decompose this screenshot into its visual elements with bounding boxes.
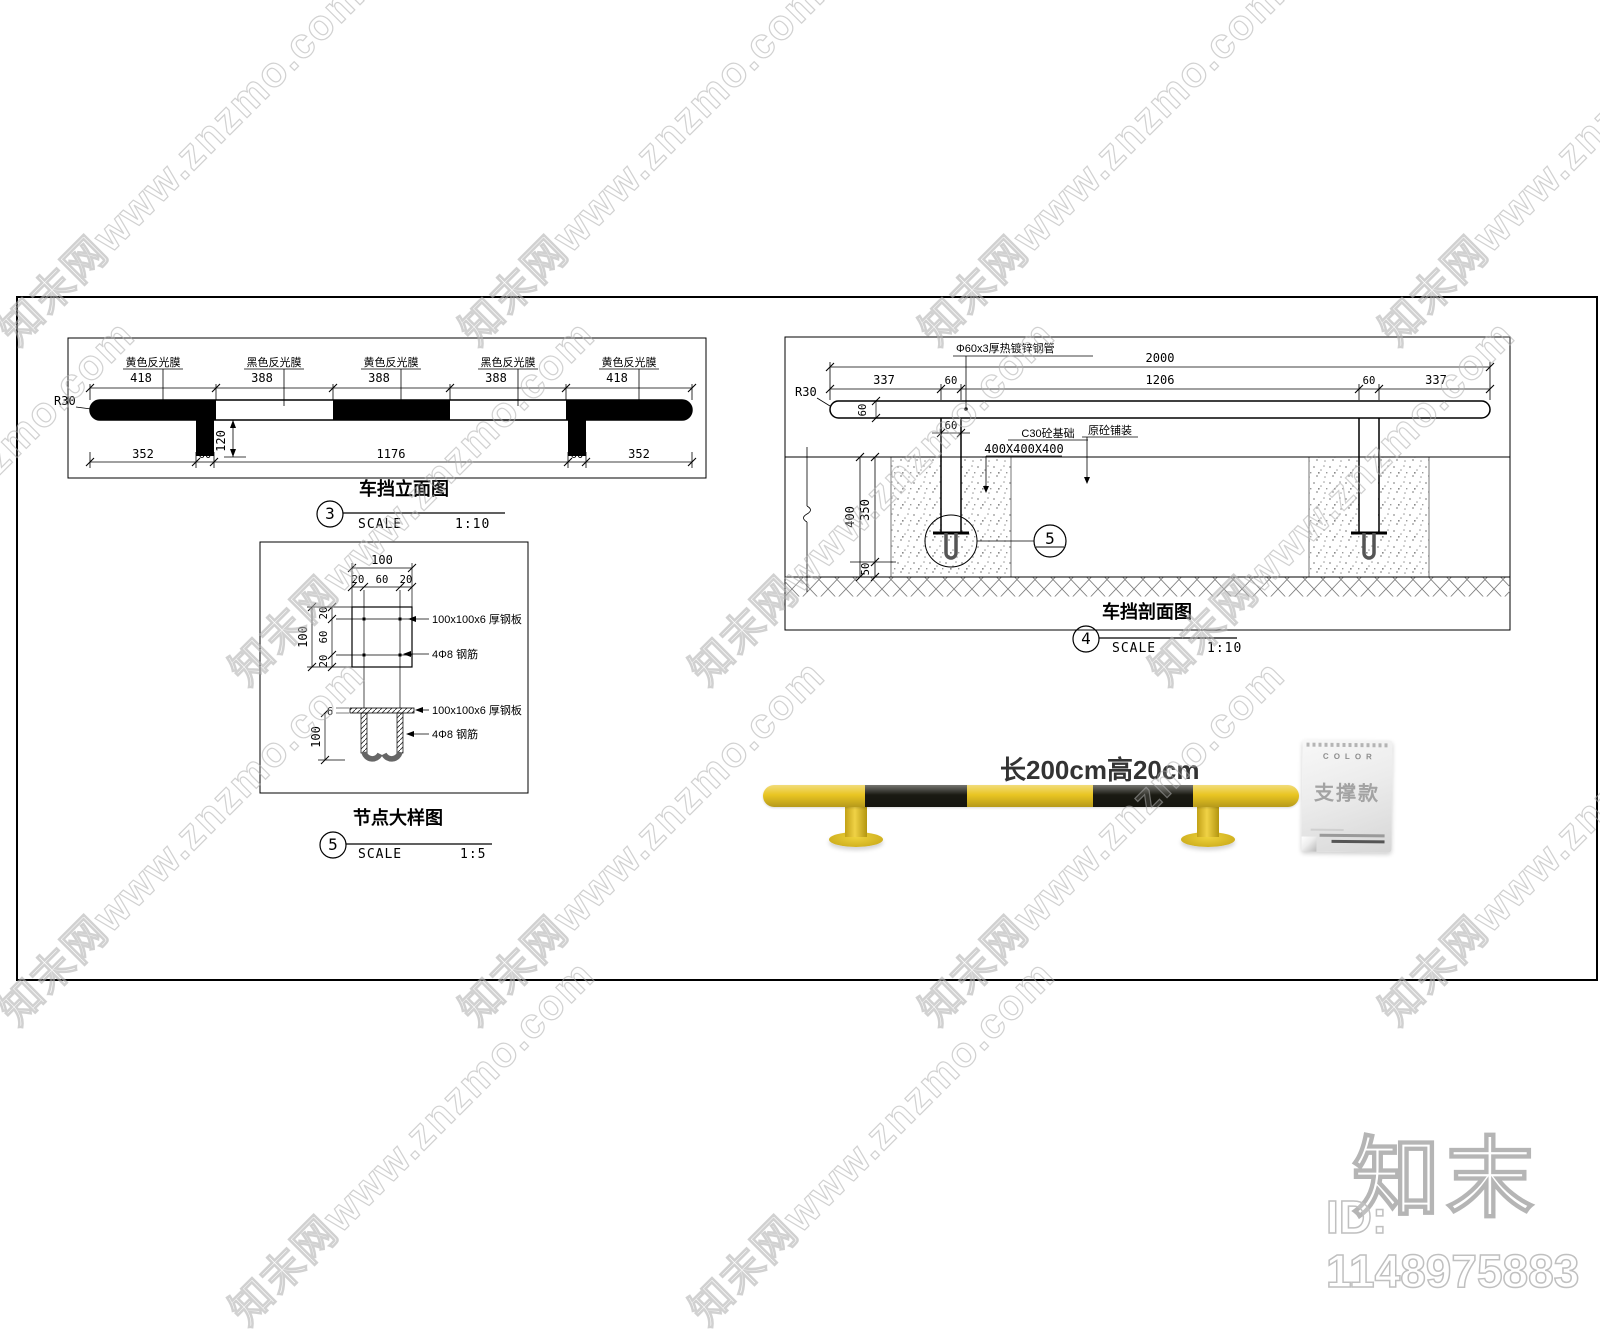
- node-h-20b: 20: [318, 655, 330, 668]
- elevation-dim-418-right: 418: [606, 371, 628, 385]
- elevation-bottom-1176: 1176: [377, 447, 406, 461]
- section-dim-60-right: 60: [1363, 375, 1376, 387]
- elevation-bottom-60-right: 60: [571, 449, 584, 461]
- pavement-label: 原砼铺装: [1088, 424, 1132, 437]
- elevation-dim-388-c: 388: [485, 371, 507, 385]
- elevation-callout-number: 3: [325, 504, 335, 523]
- node-w-20a: 20: [352, 574, 365, 586]
- elevation-bottom-352-right: 352: [628, 447, 650, 461]
- node-scale-label: SCALE: [358, 847, 402, 862]
- elevation-scale-value: 1:10: [455, 517, 490, 532]
- node-plan-height: 100: [296, 626, 310, 648]
- node-plan-plate: [352, 607, 412, 667]
- section-pipe-height-text: 60: [857, 404, 869, 417]
- film-label-5: 黄色反光膜: [602, 355, 657, 369]
- tag-header: COLOR: [1302, 752, 1392, 762]
- tag-corner-curl: [1301, 837, 1316, 852]
- elevation-leg-height-text: 120: [214, 430, 228, 452]
- film-label-4: 黑色反光膜: [481, 355, 536, 369]
- film-label-1: 黄色反光膜: [126, 355, 181, 369]
- soil-hatch-band: [785, 578, 1510, 597]
- node-scale-value: 1:5: [460, 847, 486, 862]
- tag-title: 支撑款: [1302, 777, 1392, 807]
- section-pipe-label: Φ60x3厚热镀锌钢管: [956, 341, 1055, 355]
- node-plan-gridlines: [336, 590, 412, 708]
- section-scale-value: 1:10: [1207, 641, 1242, 656]
- elevation-bar-segment-yellow-mid: [333, 400, 450, 420]
- film-label-3: 黄色反光膜: [364, 355, 419, 369]
- node-h-20a: 20: [318, 607, 330, 620]
- node-plan-rebar-label: 4Φ8 钢筋: [432, 647, 478, 661]
- node-w-60: 60: [376, 574, 389, 586]
- depth-lower-text: 50: [860, 563, 872, 576]
- node-section-plate-label: 100x100x6 厚钢板: [432, 703, 522, 717]
- elevation-dim-418-left: 418: [130, 371, 152, 385]
- film-label-2: 黑色反光膜: [247, 355, 302, 369]
- node-anchor-depth: 100: [309, 726, 323, 748]
- section-title: 车挡剖面图: [1102, 601, 1192, 622]
- bollard-tube: [763, 785, 1299, 807]
- section-pipe: [830, 401, 1490, 418]
- section-scale-label: SCALE: [1112, 641, 1156, 656]
- node-title: 节点大样图: [353, 807, 443, 828]
- node-plate-thickness-ticks: [336, 708, 349, 713]
- elevation-bottom-352-left: 352: [132, 447, 154, 461]
- detail-bubble-number: 5: [1045, 529, 1055, 548]
- node-plan-plate-label: 100x100x6 厚钢板: [432, 612, 522, 626]
- node-callout-number: 5: [328, 835, 338, 854]
- tag-perforation: [1307, 743, 1389, 748]
- depth-total-text: 400: [843, 506, 857, 528]
- price-tag: COLOR 支撑款: [1301, 740, 1392, 853]
- section-dim-1206: 1206: [1146, 373, 1175, 387]
- node-plan-width: 100: [371, 553, 393, 567]
- elevation-scale-label: SCALE: [358, 517, 402, 532]
- section-dim-337-right: 337: [1425, 373, 1447, 387]
- drawing-sheet-svg: 418 388 388 388 418 黄色反光膜 黑色反光膜 黄色反光膜 黑色…: [0, 0, 1600, 1280]
- elevation-bar-segment-yellow-right: [566, 400, 692, 420]
- depth-upper-text: 350: [858, 499, 872, 521]
- node-section-rebar-label: 4Φ8 钢筋: [432, 727, 478, 741]
- photo-caption: 长200cm高20cm: [1000, 750, 1200, 787]
- elevation-panel: 418 388 388 388 418 黄色反光膜 黑色反光膜 黄色反光膜 黑色…: [54, 338, 706, 532]
- elevation-bottom-60-left: 60: [199, 449, 212, 461]
- node-plate-thickness: 6: [327, 706, 333, 718]
- node-rebar-dots: [363, 618, 402, 657]
- node-w-20b: 20: [400, 574, 413, 586]
- foundation-label: C30砼基础: [1021, 427, 1074, 440]
- node-anchor-bar-left: [361, 713, 367, 753]
- section-panel: 2000 337 60 1206 60 337 Φ60x3厚热镀锌钢管 R30 …: [785, 337, 1510, 656]
- elevation-title: 车挡立面图: [359, 478, 449, 499]
- section-dim-60-left: 60: [945, 375, 958, 387]
- foundation-size: 400X400X400: [984, 442, 1063, 456]
- node-detail-panel: 100 20 60 20 100 20 60 20 100x100x6 厚钢板 …: [260, 542, 528, 862]
- section-dim-337-left: 337: [873, 373, 895, 387]
- node-section-plate: [350, 708, 414, 713]
- section-dim-2000: 2000: [1146, 351, 1175, 365]
- elevation-radius-label: R30: [54, 394, 76, 408]
- tag-fineprint-lines: [1311, 826, 1385, 844]
- section-radius-label: R30: [795, 385, 817, 399]
- node-h-60: 60: [318, 631, 330, 644]
- elevation-dim-388-b: 388: [368, 371, 390, 385]
- section-callout-number: 4: [1081, 629, 1091, 648]
- section-leg-width-text: 60: [945, 420, 958, 432]
- image-id-text: ID: 1148975883: [1326, 1190, 1600, 1298]
- node-anchor-bar-right: [397, 713, 403, 753]
- elevation-bar-segment-yellow-left: [90, 400, 216, 420]
- elevation-dim-388-a: 388: [251, 371, 273, 385]
